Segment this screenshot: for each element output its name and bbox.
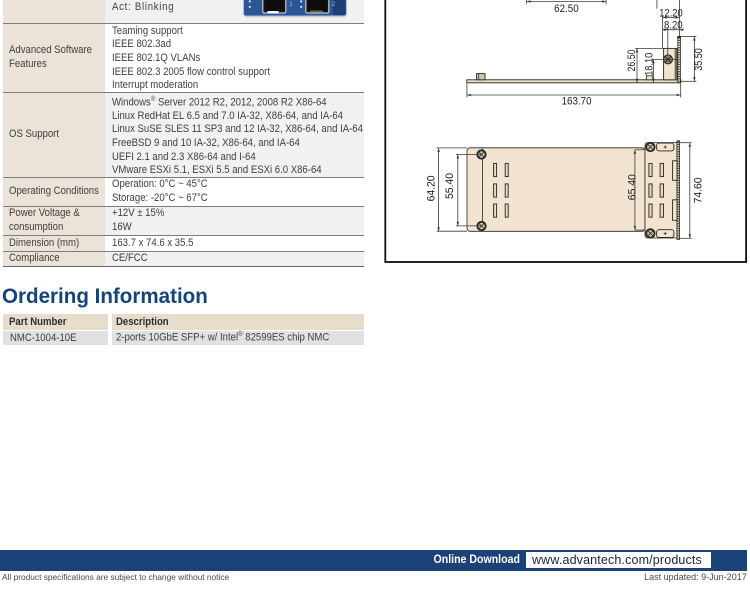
svg-text:65.40: 65.40 — [626, 174, 638, 200]
svg-text:163.70: 163.70 — [562, 96, 592, 108]
svg-text:12.20: 12.20 — [659, 8, 683, 20]
svg-text:26.50: 26.50 — [626, 50, 638, 72]
svg-text:64.20: 64.20 — [425, 175, 437, 201]
svg-text:55.40: 55.40 — [444, 173, 456, 199]
svg-text:35.50: 35.50 — [693, 48, 705, 71]
svg-text:18.10: 18.10 — [643, 53, 655, 76]
svg-text:74.60: 74.60 — [693, 177, 705, 203]
svg-text:8.20: 8.20 — [664, 20, 683, 32]
svg-text:62.50: 62.50 — [554, 3, 579, 15]
